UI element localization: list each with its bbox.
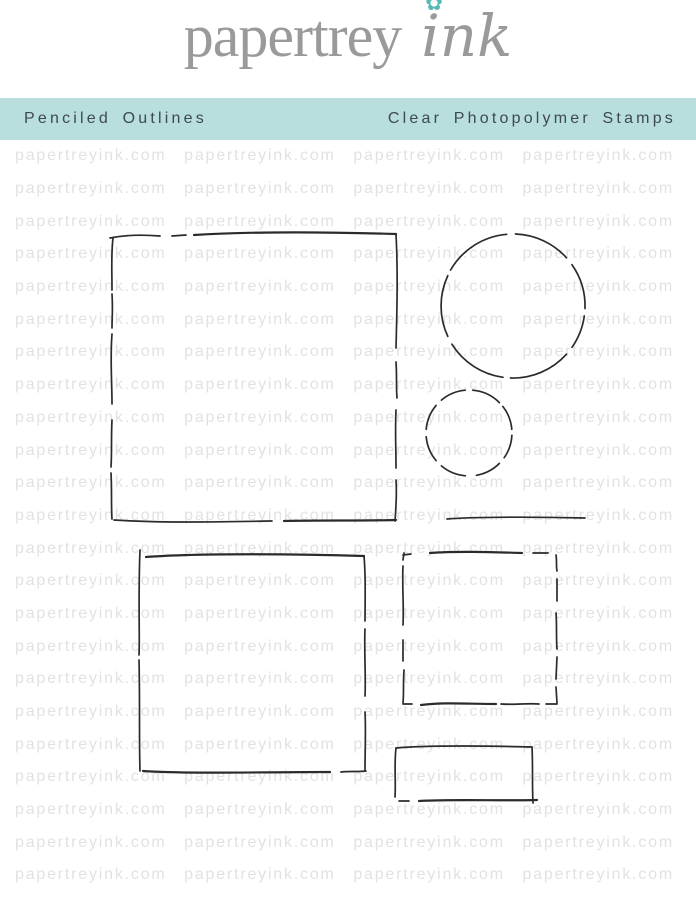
watermark-text: papertreyink.com xyxy=(353,540,505,558)
watermark-text: papertreyink.com xyxy=(353,638,505,656)
product-banner: Penciled Outlines Clear Photopolymer Sta… xyxy=(0,98,696,140)
watermark-text: papertreyink.com xyxy=(353,703,505,721)
watermark-text: papertreyink.com xyxy=(522,866,674,884)
watermark-text: papertreyink.com xyxy=(522,540,674,558)
watermark-text: papertreyink.com xyxy=(15,670,167,688)
watermark-text: papertreyink.com xyxy=(15,442,167,460)
watermark-text: papertreyink.com xyxy=(522,213,674,231)
watermark-row: papertreyink.compapertreyink.compapertre… xyxy=(0,369,696,402)
watermark-text: papertreyink.com xyxy=(184,670,336,688)
watermark-text: papertreyink.com xyxy=(353,180,505,198)
watermark-row: papertreyink.compapertreyink.compapertre… xyxy=(0,565,696,598)
watermark-text: papertreyink.com xyxy=(15,703,167,721)
watermark-text: papertreyink.com xyxy=(353,834,505,852)
watermark-text: papertreyink.com xyxy=(353,213,505,231)
watermark-text: papertreyink.com xyxy=(184,376,336,394)
flower-icon: ✿ xyxy=(425,0,443,14)
watermark-row: papertreyink.compapertreyink.compapertre… xyxy=(0,303,696,336)
watermark-row: papertreyink.compapertreyink.compapertre… xyxy=(0,467,696,500)
brand-name-ink-wrap: ✿ ink xyxy=(421,7,512,65)
watermark-text: papertreyink.com xyxy=(15,834,167,852)
watermark-text: papertreyink.com xyxy=(522,409,674,427)
watermark-row: papertreyink.compapertreyink.compapertre… xyxy=(0,238,696,271)
watermark-text: papertreyink.com xyxy=(15,245,167,263)
watermark-text: papertreyink.com xyxy=(15,638,167,656)
watermark-text: papertreyink.com xyxy=(15,507,167,525)
watermark-text: papertreyink.com xyxy=(184,834,336,852)
watermark-row: papertreyink.compapertreyink.compapertre… xyxy=(0,728,696,761)
watermark-text: papertreyink.com xyxy=(184,703,336,721)
watermark-text: papertreyink.com xyxy=(184,572,336,590)
watermark-row: papertreyink.compapertreyink.compapertre… xyxy=(0,402,696,435)
watermark-row: papertreyink.compapertreyink.compapertre… xyxy=(0,761,696,794)
product-image: papertrey ✿ ink Penciled Outlines Clear … xyxy=(0,0,696,900)
watermark-text: papertreyink.com xyxy=(15,801,167,819)
brand-name-papertrey: papertrey xyxy=(184,6,402,66)
watermark-text: papertreyink.com xyxy=(353,311,505,329)
watermark-text: papertreyink.com xyxy=(184,768,336,786)
watermark-text: papertreyink.com xyxy=(184,213,336,231)
watermark-text: papertreyink.com xyxy=(184,736,336,754)
watermark-text: papertreyink.com xyxy=(15,572,167,590)
watermark-text: papertreyink.com xyxy=(522,834,674,852)
watermark-text: papertreyink.com xyxy=(184,278,336,296)
watermark-text: papertreyink.com xyxy=(184,409,336,427)
watermark-text: papertreyink.com xyxy=(184,474,336,492)
watermark-text: papertreyink.com xyxy=(522,278,674,296)
watermark-text: papertreyink.com xyxy=(522,507,674,525)
watermark-text: papertreyink.com xyxy=(15,147,167,165)
watermark-text: papertreyink.com xyxy=(184,540,336,558)
watermark-text: papertreyink.com xyxy=(522,605,674,623)
watermark-text: papertreyink.com xyxy=(353,409,505,427)
watermark-text: papertreyink.com xyxy=(353,670,505,688)
watermark-text: papertreyink.com xyxy=(15,213,167,231)
watermark-text: papertreyink.com xyxy=(522,801,674,819)
watermark-text: papertreyink.com xyxy=(184,605,336,623)
watermark-text: papertreyink.com xyxy=(522,703,674,721)
watermark-text: papertreyink.com xyxy=(522,180,674,198)
watermark-text: papertreyink.com xyxy=(353,605,505,623)
watermark-text: papertreyink.com xyxy=(353,343,505,361)
watermark-text: papertreyink.com xyxy=(15,605,167,623)
watermark-text: papertreyink.com xyxy=(522,474,674,492)
product-type: Clear Photopolymer Stamps xyxy=(388,110,676,128)
watermark-text: papertreyink.com xyxy=(184,638,336,656)
watermark-row: papertreyink.compapertreyink.compapertre… xyxy=(0,434,696,467)
watermark-text: papertreyink.com xyxy=(15,376,167,394)
brand-logo: papertrey ✿ ink xyxy=(0,0,696,98)
watermark-text: papertreyink.com xyxy=(15,409,167,427)
watermark-text: papertreyink.com xyxy=(353,376,505,394)
watermark-row: papertreyink.compapertreyink.compapertre… xyxy=(0,826,696,859)
product-name: Penciled Outlines xyxy=(24,110,207,128)
watermark-row: papertreyink.compapertreyink.compapertre… xyxy=(0,173,696,206)
watermark-text: papertreyink.com xyxy=(522,343,674,361)
watermark-text: papertreyink.com xyxy=(353,866,505,884)
watermark-text: papertreyink.com xyxy=(522,670,674,688)
watermark-text: papertreyink.com xyxy=(184,180,336,198)
watermark-row: papertreyink.compapertreyink.compapertre… xyxy=(0,532,696,565)
watermark-text: papertreyink.com xyxy=(15,736,167,754)
watermark-text: papertreyink.com xyxy=(522,147,674,165)
watermark-text: papertreyink.com xyxy=(522,376,674,394)
watermark-text: papertreyink.com xyxy=(15,343,167,361)
watermark-text: papertreyink.com xyxy=(184,507,336,525)
watermark-text: papertreyink.com xyxy=(184,866,336,884)
watermark-text: papertreyink.com xyxy=(353,474,505,492)
watermark-row: papertreyink.compapertreyink.compapertre… xyxy=(0,140,696,173)
watermark-text: papertreyink.com xyxy=(353,768,505,786)
watermark-text: papertreyink.com xyxy=(15,768,167,786)
watermark-text: papertreyink.com xyxy=(353,507,505,525)
watermark-text: papertreyink.com xyxy=(353,147,505,165)
watermark-text: papertreyink.com xyxy=(353,442,505,460)
watermark-row: papertreyink.compapertreyink.compapertre… xyxy=(0,696,696,729)
watermark-text: papertreyink.com xyxy=(184,343,336,361)
watermark-text: papertreyink.com xyxy=(522,736,674,754)
watermark-text: papertreyink.com xyxy=(353,736,505,754)
watermark-text: papertreyink.com xyxy=(15,540,167,558)
watermark-text: papertreyink.com xyxy=(15,866,167,884)
watermark-text: papertreyink.com xyxy=(184,801,336,819)
watermark-text: papertreyink.com xyxy=(184,147,336,165)
watermark-text: papertreyink.com xyxy=(184,311,336,329)
watermark-text: papertreyink.com xyxy=(15,180,167,198)
stamp-preview-area: papertreyink.compapertreyink.compapertre… xyxy=(0,140,696,900)
watermark-text: papertreyink.com xyxy=(353,278,505,296)
watermark-row: papertreyink.compapertreyink.compapertre… xyxy=(0,859,696,892)
watermark-row: papertreyink.compapertreyink.compapertre… xyxy=(0,598,696,631)
watermark-text: papertreyink.com xyxy=(522,311,674,329)
watermark-row: papertreyink.compapertreyink.compapertre… xyxy=(0,500,696,533)
watermark-text: papertreyink.com xyxy=(353,801,505,819)
watermark-row: papertreyink.compapertreyink.compapertre… xyxy=(0,794,696,827)
watermark-text: papertreyink.com xyxy=(522,572,674,590)
watermark-row: papertreyink.compapertreyink.compapertre… xyxy=(0,663,696,696)
watermark-text: papertreyink.com xyxy=(522,245,674,263)
watermark-text: papertreyink.com xyxy=(15,474,167,492)
watermark-text: papertreyink.com xyxy=(522,768,674,786)
watermark-text: papertreyink.com xyxy=(184,245,336,263)
watermark-row: papertreyink.compapertreyink.compapertre… xyxy=(0,630,696,663)
watermark-text: papertreyink.com xyxy=(184,442,336,460)
watermark-text: papertreyink.com xyxy=(15,278,167,296)
watermark-text: papertreyink.com xyxy=(522,638,674,656)
watermark-text: papertreyink.com xyxy=(353,572,505,590)
watermark-row: papertreyink.compapertreyink.compapertre… xyxy=(0,271,696,304)
watermark-text: papertreyink.com xyxy=(353,245,505,263)
watermark-text: papertreyink.com xyxy=(15,311,167,329)
watermark-row: papertreyink.compapertreyink.compapertre… xyxy=(0,336,696,369)
watermark-grid: papertreyink.compapertreyink.compapertre… xyxy=(0,140,696,892)
watermark-row: papertreyink.compapertreyink.compapertre… xyxy=(0,205,696,238)
watermark-text: papertreyink.com xyxy=(522,442,674,460)
